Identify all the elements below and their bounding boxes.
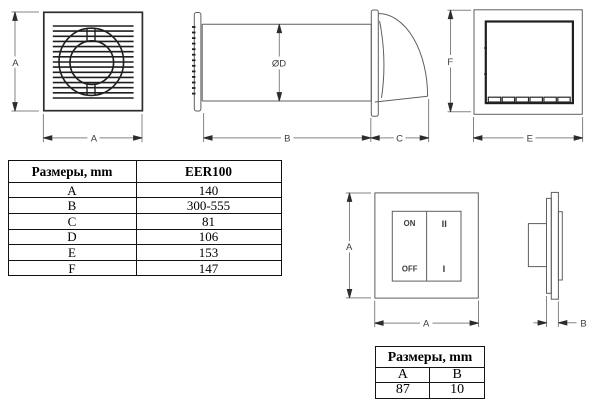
- svg-text:OFF: OFF: [402, 265, 418, 274]
- svg-text:ØD: ØD: [272, 58, 286, 69]
- svg-text:A: A: [346, 242, 353, 253]
- svg-text:A: A: [12, 58, 19, 69]
- svg-text:F: F: [447, 57, 453, 68]
- svg-text:C: C: [396, 134, 403, 145]
- svg-text:ON: ON: [404, 219, 416, 228]
- svg-text:II: II: [442, 219, 447, 230]
- svg-text:A: A: [423, 319, 430, 330]
- svg-text:B: B: [580, 318, 586, 329]
- svg-text:E: E: [527, 134, 533, 145]
- svg-text:A: A: [91, 133, 98, 144]
- svg-text:I: I: [443, 264, 446, 275]
- svg-text:B: B: [284, 134, 290, 145]
